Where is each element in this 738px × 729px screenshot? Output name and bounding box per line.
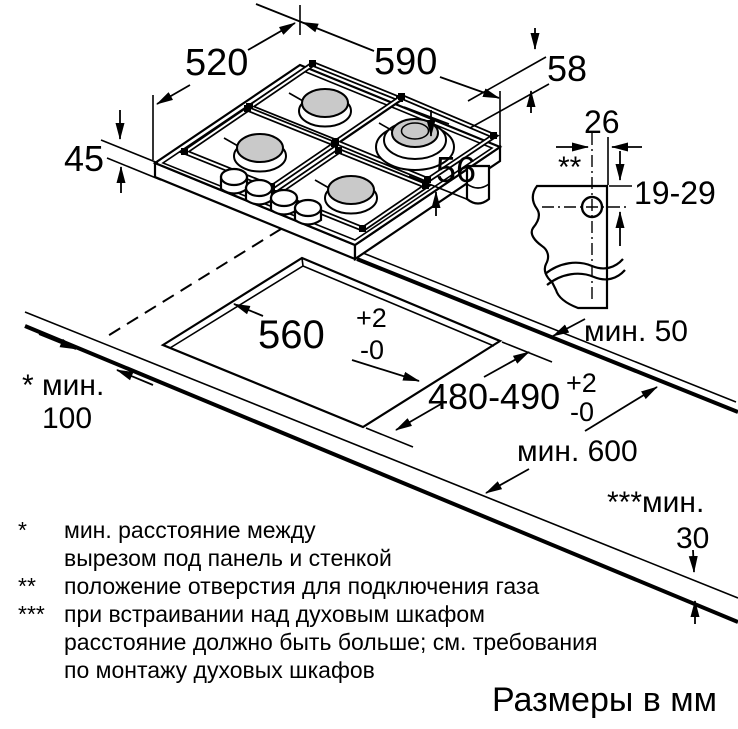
gas-hole-detail-view: 26 ** 19-29	[532, 104, 716, 308]
hob-height-label: 45	[64, 138, 104, 179]
cutout-depth-tol-plus: +2	[566, 368, 597, 398]
side-clearance-label: * мин.	[22, 369, 104, 402]
dim-side-clearance: * мин. 100	[22, 334, 153, 435]
hob-depth-label: 520	[185, 42, 248, 84]
footnote-marker: **	[18, 573, 36, 599]
footnote-text: вырезом под панель и стенкой	[64, 545, 392, 571]
hob-width-label: 590	[374, 41, 437, 83]
footnote-text: мин. расстояние между	[64, 517, 316, 543]
side-clearance-value: 100	[42, 402, 92, 435]
gas-hole-marker: **	[558, 151, 582, 184]
hob-under-height-label: 56	[436, 149, 476, 190]
cutout-depth-label: 480-490	[428, 376, 560, 417]
diagram-canvas: 560 +2 -0 480-490 +2 -0 мин. 50 мин. 600…	[0, 0, 738, 729]
units-note: Размеры в мм	[492, 681, 717, 719]
wall-dashed-line	[106, 229, 281, 337]
cutout-depth-tol-minus: -0	[570, 397, 594, 427]
footnote-marker: *	[18, 517, 27, 543]
dim-hob-height: 45	[64, 110, 161, 193]
bottom-clearance-label: ***мин.	[607, 486, 704, 519]
dim-rear-clearance: мин. 50	[553, 315, 688, 348]
cutout-width-tol-plus: +2	[356, 303, 387, 333]
dim-cutout-width: 560 +2 -0	[234, 303, 419, 381]
cutout-width-label: 560	[258, 313, 325, 357]
control-knob	[271, 190, 297, 215]
hob-edge-height-label: 58	[547, 48, 587, 89]
gas-hole-depth-range-label: 19-29	[634, 175, 716, 211]
footnotes: * мин. расстояние между вырезом под пане…	[18, 517, 597, 683]
footnote-text: по монтажу духовых шкафов	[64, 657, 375, 683]
footnote-text: при встраивании над духовым шкафом	[64, 601, 485, 627]
footnote-text: расстояние должно быть больше; см. требо…	[64, 629, 597, 655]
dim-cutout-depth: 480-490 +2 -0	[366, 342, 597, 447]
installation-diagram: 560 +2 -0 480-490 +2 -0 мин. 50 мин. 600…	[0, 0, 738, 729]
cutout-width-tol-minus: -0	[360, 335, 384, 365]
bottom-clearance-value: 30	[676, 522, 709, 555]
footnote-marker: ***	[18, 601, 45, 627]
worktop-depth-label: мин. 600	[517, 435, 638, 468]
control-knob	[295, 200, 321, 225]
footnote-text: положение отверстия для подключения газа	[64, 573, 539, 599]
control-knob	[221, 169, 247, 194]
control-knob	[246, 180, 272, 205]
gas-hole-offset-label: 26	[584, 104, 620, 140]
rear-clearance-label: мин. 50	[584, 315, 688, 348]
dim-hob-edge-height: 58	[468, 28, 587, 128]
